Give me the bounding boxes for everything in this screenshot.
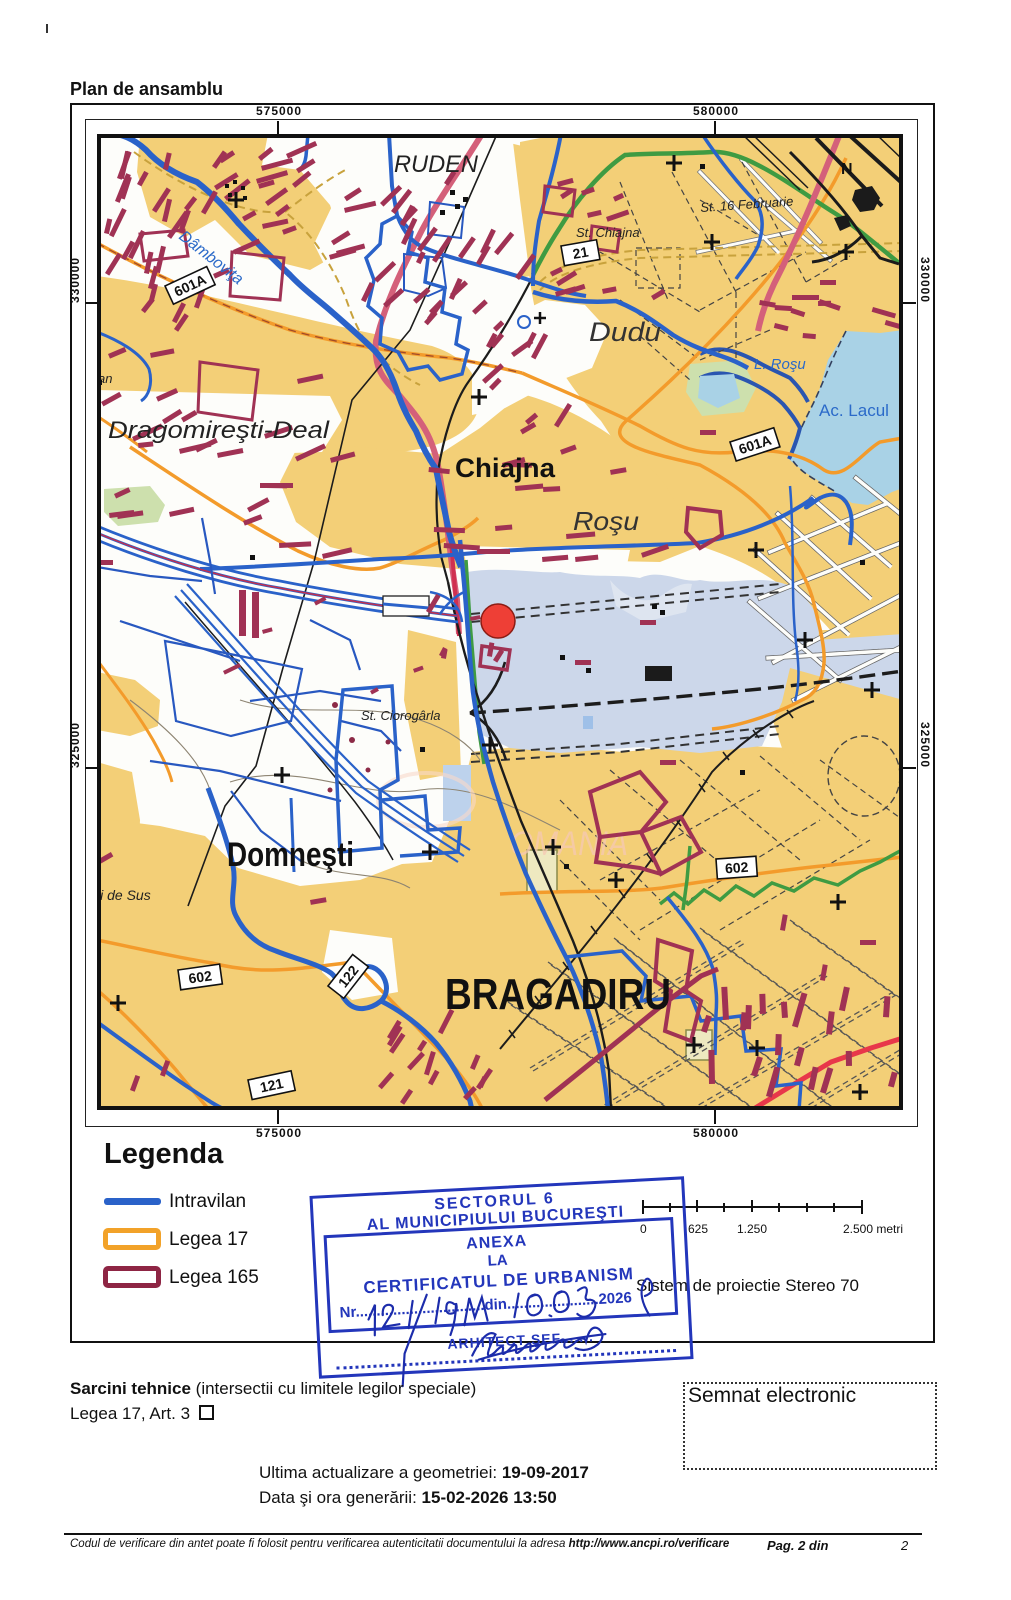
- svg-text:Dragomireşti-Deal: Dragomireşti-Deal: [108, 417, 330, 444]
- svg-text:RUDEN: RUDEN: [394, 151, 479, 178]
- svg-text:St. Chiajna: St. Chiajna: [576, 225, 640, 240]
- svg-text:OMANIA: OMANIA: [510, 825, 628, 863]
- svg-text:1.250: 1.250: [737, 1222, 767, 1236]
- svg-text:Chiajna: Chiajna: [455, 453, 556, 483]
- svg-text:Roşu: Roşu: [573, 506, 639, 536]
- svg-text:St. Ciorogârla: St. Ciorogârla: [361, 708, 440, 723]
- svg-text:21: 21: [571, 243, 589, 261]
- svg-text:602: 602: [724, 859, 749, 877]
- svg-text:Domneşti: Domneşti: [227, 836, 354, 874]
- svg-text:602: 602: [188, 967, 214, 986]
- svg-text:N: N: [841, 161, 853, 178]
- svg-text:2.500 metri: 2.500 metri: [843, 1222, 903, 1236]
- svg-text:Ac. Lacul: Ac. Lacul: [819, 401, 889, 420]
- svg-text:Dudu: Dudu: [589, 317, 661, 347]
- svg-text:li de Sus: li de Sus: [97, 887, 151, 903]
- svg-text:BRAGADIRU: BRAGADIRU: [445, 970, 671, 1019]
- svg-text:625: 625: [688, 1222, 708, 1236]
- svg-text:L. Roşu: L. Roşu: [754, 356, 806, 373]
